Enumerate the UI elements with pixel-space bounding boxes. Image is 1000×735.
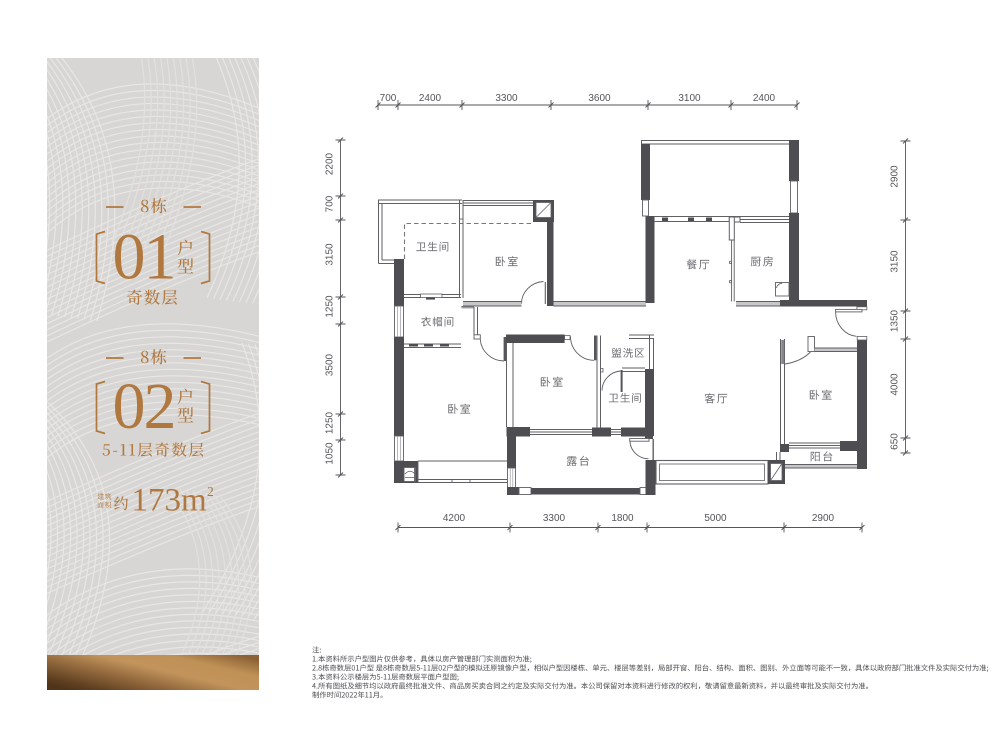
svg-text:2: 2 — [207, 484, 214, 499]
svg-text:3300: 3300 — [495, 93, 518, 104]
svg-text:3500: 3500 — [325, 353, 336, 376]
svg-text:01: 01 — [113, 221, 175, 294]
svg-text:3300: 3300 — [543, 513, 566, 524]
svg-text:3150: 3150 — [325, 243, 336, 266]
svg-text:3600: 3600 — [588, 93, 611, 104]
svg-text:2900: 2900 — [812, 513, 835, 524]
svg-text:4000: 4000 — [890, 373, 901, 396]
svg-text:3100: 3100 — [678, 93, 701, 104]
svg-text:1800: 1800 — [611, 513, 634, 524]
svg-text:1250: 1250 — [325, 411, 336, 434]
svg-text:2400: 2400 — [419, 93, 442, 104]
svg-text:02: 02 — [113, 370, 175, 443]
svg-text:173m: 173m — [132, 483, 208, 519]
svg-text:4200: 4200 — [443, 513, 466, 524]
svg-text:1250: 1250 — [325, 295, 336, 318]
svg-text:700: 700 — [325, 195, 336, 212]
svg-text:5000: 5000 — [704, 513, 727, 524]
svg-text:2900: 2900 — [890, 165, 901, 188]
svg-text:3150: 3150 — [890, 250, 901, 273]
svg-text:1350: 1350 — [890, 309, 901, 332]
svg-text:2200: 2200 — [325, 152, 336, 175]
svg-text:1050: 1050 — [325, 442, 336, 465]
svg-text:2400: 2400 — [753, 93, 776, 104]
svg-text:700: 700 — [380, 93, 397, 104]
svg-text:650: 650 — [890, 433, 901, 450]
